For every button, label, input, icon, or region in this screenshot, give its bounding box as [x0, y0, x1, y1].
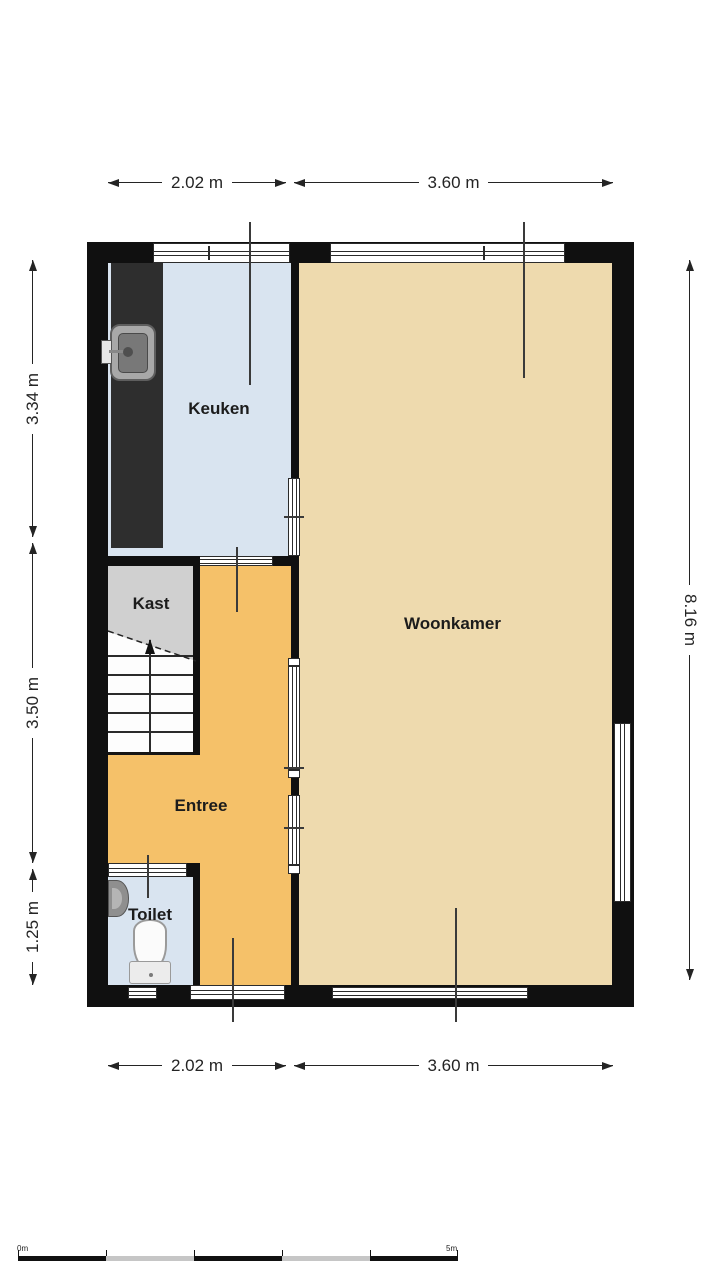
arrow-left-icon [108, 1062, 119, 1070]
arrow-left-icon [108, 179, 119, 187]
dimension-label: 3.50 m [23, 668, 43, 738]
scale-end-label: 5m [446, 1244, 457, 1253]
arrow-right-icon [602, 179, 613, 187]
dimension-label: 1.25 m [23, 892, 43, 962]
dimension-bottom-livingroom: 3.60 m [294, 1065, 613, 1066]
tick-line [284, 516, 304, 518]
stairs-bottom-edge [108, 752, 193, 755]
window-livingroom-right [614, 723, 631, 902]
scale-segment [370, 1256, 458, 1261]
door-opening-kitchen-entree [197, 556, 273, 566]
arrow-down-icon [29, 526, 37, 537]
dimension-top-livingroom: 3.60 m [294, 182, 613, 183]
arrow-left-icon [294, 1062, 305, 1070]
window-cap [288, 658, 300, 666]
dimension-right-total: 8.16 m [689, 260, 690, 980]
dimension-left-kitchen: 3.34 m [32, 260, 33, 537]
dimension-left-hall: 3.50 m [32, 543, 33, 863]
scale-segment [194, 1256, 282, 1261]
tick-line [236, 547, 238, 612]
interior-wall-center [291, 263, 299, 985]
scale-tick [282, 1250, 283, 1256]
tick-line [232, 938, 234, 1022]
arrow-up-icon [29, 543, 37, 554]
dimension-bottom-kitchen: 2.02 m [108, 1065, 286, 1066]
dimension-label: 2.02 m [162, 1056, 232, 1076]
scale-bar [18, 1256, 458, 1261]
arrow-left-icon [294, 179, 305, 187]
tick-line [284, 827, 304, 829]
window-toilet-bottom [128, 987, 157, 999]
arrow-down-icon [29, 974, 37, 985]
room-entree [200, 566, 291, 985]
room-label-toilet: Toilet [108, 905, 192, 925]
dimension-label: 3.60 m [419, 1056, 489, 1076]
arrow-up-icon [29, 260, 37, 271]
arrow-up-icon [686, 260, 694, 271]
arrow-down-icon [686, 969, 694, 980]
scale-tick [457, 1250, 458, 1256]
flush-button-icon [149, 973, 153, 977]
drain-icon [123, 347, 133, 357]
wall-kitchen-bottom [87, 556, 197, 566]
tick-line [147, 855, 149, 898]
scale-tick [106, 1250, 107, 1256]
room-label-keuken: Keuken [158, 399, 280, 419]
dimension-label: 3.60 m [419, 173, 489, 193]
window-divider [483, 246, 485, 260]
room-label-kast: Kast [109, 594, 193, 614]
wall-pillar [273, 556, 299, 566]
toilet-tank [129, 961, 171, 984]
scale-segment [282, 1256, 370, 1261]
dimension-top-kitchen: 2.02 m [108, 182, 286, 183]
window-livingroom-bottom [332, 987, 528, 999]
window-cap [288, 770, 300, 778]
window-livingroom-top [330, 243, 565, 263]
window-divider [208, 246, 210, 260]
dimension-left-toilet: 1.25 m [32, 869, 33, 985]
scale-segment [18, 1256, 106, 1261]
room-label-entree: Entree [140, 796, 262, 816]
wall-toilet-top [187, 863, 200, 877]
arrow-right-icon [275, 179, 286, 187]
front-door-opening [190, 985, 285, 1000]
scale-tick [370, 1250, 371, 1256]
scale-tick [194, 1250, 195, 1256]
dimension-label: 8.16 m [680, 585, 700, 655]
stair-center-line [149, 640, 151, 752]
tick-line [249, 222, 251, 385]
dimension-label: 2.02 m [162, 173, 232, 193]
window-cap [288, 865, 300, 874]
tick-line [523, 222, 525, 378]
kitchen-counter [111, 263, 163, 548]
wall-toilet-right [193, 877, 200, 985]
tick-line [284, 767, 304, 769]
wall-stairs-right [193, 556, 200, 755]
room-label-woonkamer: Woonkamer [370, 614, 535, 634]
arrow-right-icon [602, 1062, 613, 1070]
tick-line [455, 908, 457, 1022]
arrow-up-icon [29, 869, 37, 880]
arrow-right-icon [275, 1062, 286, 1070]
scale-start-label: 0m [17, 1244, 28, 1253]
window-kitchen-top [153, 243, 290, 263]
interior-window [288, 795, 300, 865]
scale-segment [106, 1256, 194, 1261]
floorplan-canvas: 2.02 m 3.60 m [0, 0, 720, 1280]
interior-window [288, 666, 300, 770]
dimension-label: 3.34 m [23, 364, 43, 434]
arrow-down-icon [29, 852, 37, 863]
